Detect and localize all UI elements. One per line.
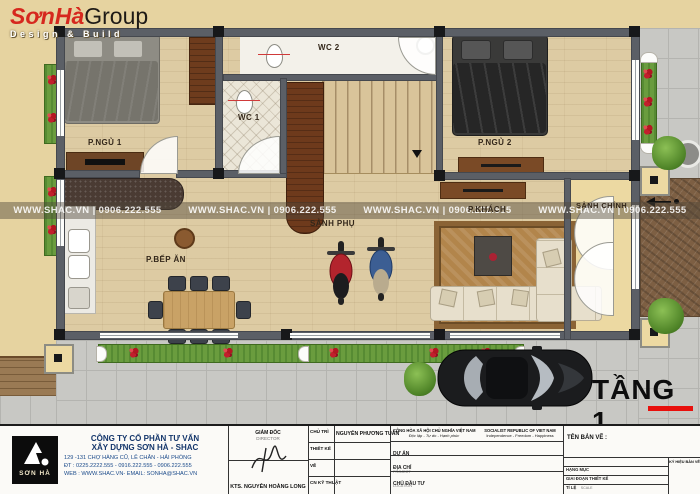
director-name: KTS. NGUYỄN HOÀNG LONG <box>228 484 308 490</box>
pillar <box>213 168 224 179</box>
wall-bed1-right <box>215 28 223 178</box>
stove <box>68 287 90 309</box>
dining-chair <box>212 276 230 291</box>
motorbike-red <box>324 240 358 306</box>
floor-title-underline <box>648 406 693 411</box>
pillow <box>73 40 103 58</box>
toilet-crosshair <box>228 100 260 101</box>
flowers <box>222 347 233 358</box>
drawing-name-box: TÊN BẢN VẼ : <box>563 426 700 458</box>
drawing-section: TÊN BẢN VẼ : HẠNG MỤC GIAI ĐOẠN THIẾT KẾ… <box>563 426 700 494</box>
sofa-pillow <box>477 289 496 308</box>
staff-table: CHỦ TRÌ NGUYỄN PHƯƠNG TUẤN THIẾT KẾ VẼ C… <box>308 426 390 494</box>
stair-direction-arrow-icon <box>412 150 422 158</box>
dresser-living-top <box>440 182 526 199</box>
pillar <box>434 329 445 340</box>
wc2-label: WC 2 <box>318 43 340 52</box>
bed-bedroom1 <box>64 34 160 124</box>
window-right-1 <box>632 60 639 140</box>
staff-row: THIẾT KẾ <box>308 443 390 460</box>
dresser-handle <box>481 164 521 167</box>
flowers <box>328 347 339 358</box>
staff-row: VẼ <box>308 460 390 477</box>
project-row: DỰ ÁN PROJECT <box>390 441 563 455</box>
stairs <box>322 80 438 174</box>
watermark-text: WWW.SHAC.VN | 0906.222.555 <box>188 205 336 216</box>
company-logo-text: SƠN HÀ <box>12 470 58 477</box>
project-row: ĐỊA CHỈ LOCATION <box>390 455 563 471</box>
bush <box>404 362 436 396</box>
director-section: GIÁM ĐỐC DIRECTOR KTS. NGUYỄN HOÀNG LONG <box>228 426 308 494</box>
company-phone: ĐT : 0225.2222.555 - 0916.222.555 - 0906… <box>64 463 226 469</box>
director-signature <box>246 444 290 474</box>
pillar <box>54 329 65 340</box>
toilet-wc2 <box>266 44 283 68</box>
cell-divider <box>334 426 335 443</box>
planter-pot <box>298 346 309 362</box>
car <box>436 345 594 411</box>
window-left-1 <box>57 70 64 136</box>
company-address: 129 -131 CHỢ HÀNG CŨ, LÊ CHÂN - HẢI PHÒN… <box>64 455 226 461</box>
pillar <box>434 26 445 37</box>
republic-vi: CỘNG HÒA XÃ HỘI CHỦ NGHĨA VIỆT NAM Độc l… <box>393 428 475 438</box>
pillow <box>461 40 491 60</box>
bedroom1-label: P.NGỦ 1 <box>88 138 122 147</box>
company-name-line1: CÔNG TY CỔ PHẦN TƯ VẤN <box>64 434 226 443</box>
living-label: P.KHÁCH <box>468 205 506 214</box>
window-front-3 <box>450 333 560 338</box>
director-label-en: DIRECTOR <box>228 436 308 441</box>
wall-bed2-bottom <box>436 172 640 180</box>
company-name-line2: XÂY DỰNG SƠN HÀ - SHAC <box>64 443 226 452</box>
watermark-text: WWW.SHAC.VN | 0906.222.555 <box>13 205 161 216</box>
drawing-code-box: KÝ HIỆU BẢN VẼ <box>668 458 700 494</box>
bush <box>652 136 686 170</box>
meta-row: HẠNG MỤC <box>563 458 668 467</box>
project-row: CHỦ ĐẦU TƯ INVESTOR <box>390 471 563 494</box>
brand-logo-tagline: Design & Build <box>10 29 148 39</box>
flowers <box>642 68 653 79</box>
cell-divider <box>334 443 335 460</box>
tv-cabinet-bedroom1 <box>66 152 144 172</box>
toilet-crosshair <box>258 54 290 55</box>
toilet-wc1 <box>236 90 253 114</box>
side-hall-label: SẢNH PHỤ <box>310 219 355 228</box>
dining-chair <box>236 301 251 319</box>
brand-logo-secondary: Group <box>84 3 148 29</box>
blanket <box>453 63 546 133</box>
flowers <box>128 347 139 358</box>
flowers <box>642 96 653 107</box>
window-front-2 <box>290 333 430 338</box>
pillow <box>113 40 143 58</box>
staff-label: THIẾT KẾ <box>310 446 331 451</box>
staff-label: VẼ <box>310 463 316 468</box>
left-lower-paving <box>0 394 56 424</box>
flowers <box>642 124 653 135</box>
cell-divider <box>334 477 335 494</box>
wall-wc1-right <box>280 78 287 174</box>
dining-chair <box>168 276 186 291</box>
pillar <box>629 329 640 340</box>
kitchen-stool <box>174 228 195 249</box>
pillar <box>54 168 65 179</box>
company-web: WEB : WWW.SHAC.VN- EMAIL: SONHA@SHAC.VN <box>64 471 226 477</box>
republic-en-line2: Independence - Freedom - Happiness <box>480 433 560 438</box>
tv-screen <box>85 159 125 165</box>
kitchen-label: P.BẾP ĂN <box>146 255 186 264</box>
sink-bowl <box>68 229 90 253</box>
main-hall-label: SẢNH CHÍNH <box>576 201 627 210</box>
sonha-logo-mark <box>12 436 58 470</box>
wall-wc2-bottom <box>223 74 443 81</box>
sink-bowl <box>68 255 90 279</box>
motorbike-blue <box>364 236 398 302</box>
brand-logo-primary: SơnHà <box>10 3 84 29</box>
window-front-1 <box>100 333 238 338</box>
wall-bed1-bottom-a <box>56 170 140 178</box>
drawing-meta: HẠNG MỤC GIAI ĐOẠN THIẾT KẾ TỈ LỆ SCALE … <box>563 458 668 494</box>
pillow <box>503 40 533 60</box>
pillar <box>434 170 445 181</box>
meta-row: TỈ LỆ SCALE <box>563 476 668 485</box>
meta-row: GIAI ĐOẠN THIẾT KẾ <box>563 467 668 476</box>
cell-divider <box>334 460 335 477</box>
project-label-vi: CHỦ ĐẦU TƯ <box>393 481 425 487</box>
blanket <box>65 61 158 121</box>
floor-plan-sheet: P.NGỦ 1 WC 2 WC 1 P.NGỦ 2 P.BẾP ĂN SẢNH <box>0 0 700 494</box>
company-logo-box: SƠN HÀ <box>12 436 58 484</box>
wardrobe-bedroom1 <box>189 37 218 105</box>
wall-bed2-left <box>436 28 443 180</box>
pillar <box>629 26 640 37</box>
column-core <box>54 354 62 362</box>
company-info: CÔNG TY CỔ PHẦN TƯ VẤN XÂY DỰNG SƠN HÀ -… <box>64 434 226 477</box>
drawing-code-label: KÝ HIỆU BẢN VẼ <box>669 460 700 464</box>
staff-label: CHỦ TRÌ <box>310 429 329 434</box>
pillar <box>213 26 224 37</box>
bedroom2-label: P.NGỦ 2 <box>478 138 512 147</box>
republic-section: CỘNG HÒA XÃ HỘI CHỦ NGHĨA VIỆT NAM Độc l… <box>390 426 563 494</box>
wc1-label: WC 1 <box>238 113 260 122</box>
dining-table <box>163 291 235 329</box>
drawing-name-label: TÊN BẢN VẼ : <box>567 435 607 441</box>
republic-en: SOCIALIST REPUBLIC OF VIET NAM Independe… <box>480 428 560 438</box>
staff-row: CHỦ TRÌ NGUYỄN PHƯƠNG TUẤN <box>308 426 390 443</box>
pillar <box>629 170 640 181</box>
staff-label: CN KỸ THUẬT <box>310 480 341 485</box>
bed-bedroom2 <box>452 34 548 136</box>
staff-row: CN KỸ THUẬT <box>308 477 390 494</box>
sofa-pillow <box>511 289 529 307</box>
company-section: SƠN HÀ CÔNG TY CỔ PHẦN TƯ VẤN XÂY DỰNG S… <box>0 426 228 494</box>
column-base <box>640 166 670 196</box>
column-core <box>650 176 658 184</box>
brand-logo: SơnHàGroup Design & Build <box>10 4 148 39</box>
planter-pot <box>640 52 658 63</box>
dresser-handle <box>463 189 503 192</box>
dining-chair <box>148 301 163 319</box>
table-decor <box>489 253 497 261</box>
meta-row: NGÀY THÁNG DATE <box>563 485 668 494</box>
coffee-table <box>474 236 512 276</box>
sofa-pillow <box>439 289 458 308</box>
kitchen-counter-sink <box>62 206 96 314</box>
title-block: SƠN HÀ CÔNG TY CỔ PHẦN TƯ VẤN XÂY DỰNG S… <box>0 424 700 494</box>
column-base <box>44 344 74 374</box>
republic-vi-line2: Độc lập - Tự do - Hạnh phúc <box>393 433 475 438</box>
bush <box>648 298 684 334</box>
dining-chair <box>190 276 208 291</box>
